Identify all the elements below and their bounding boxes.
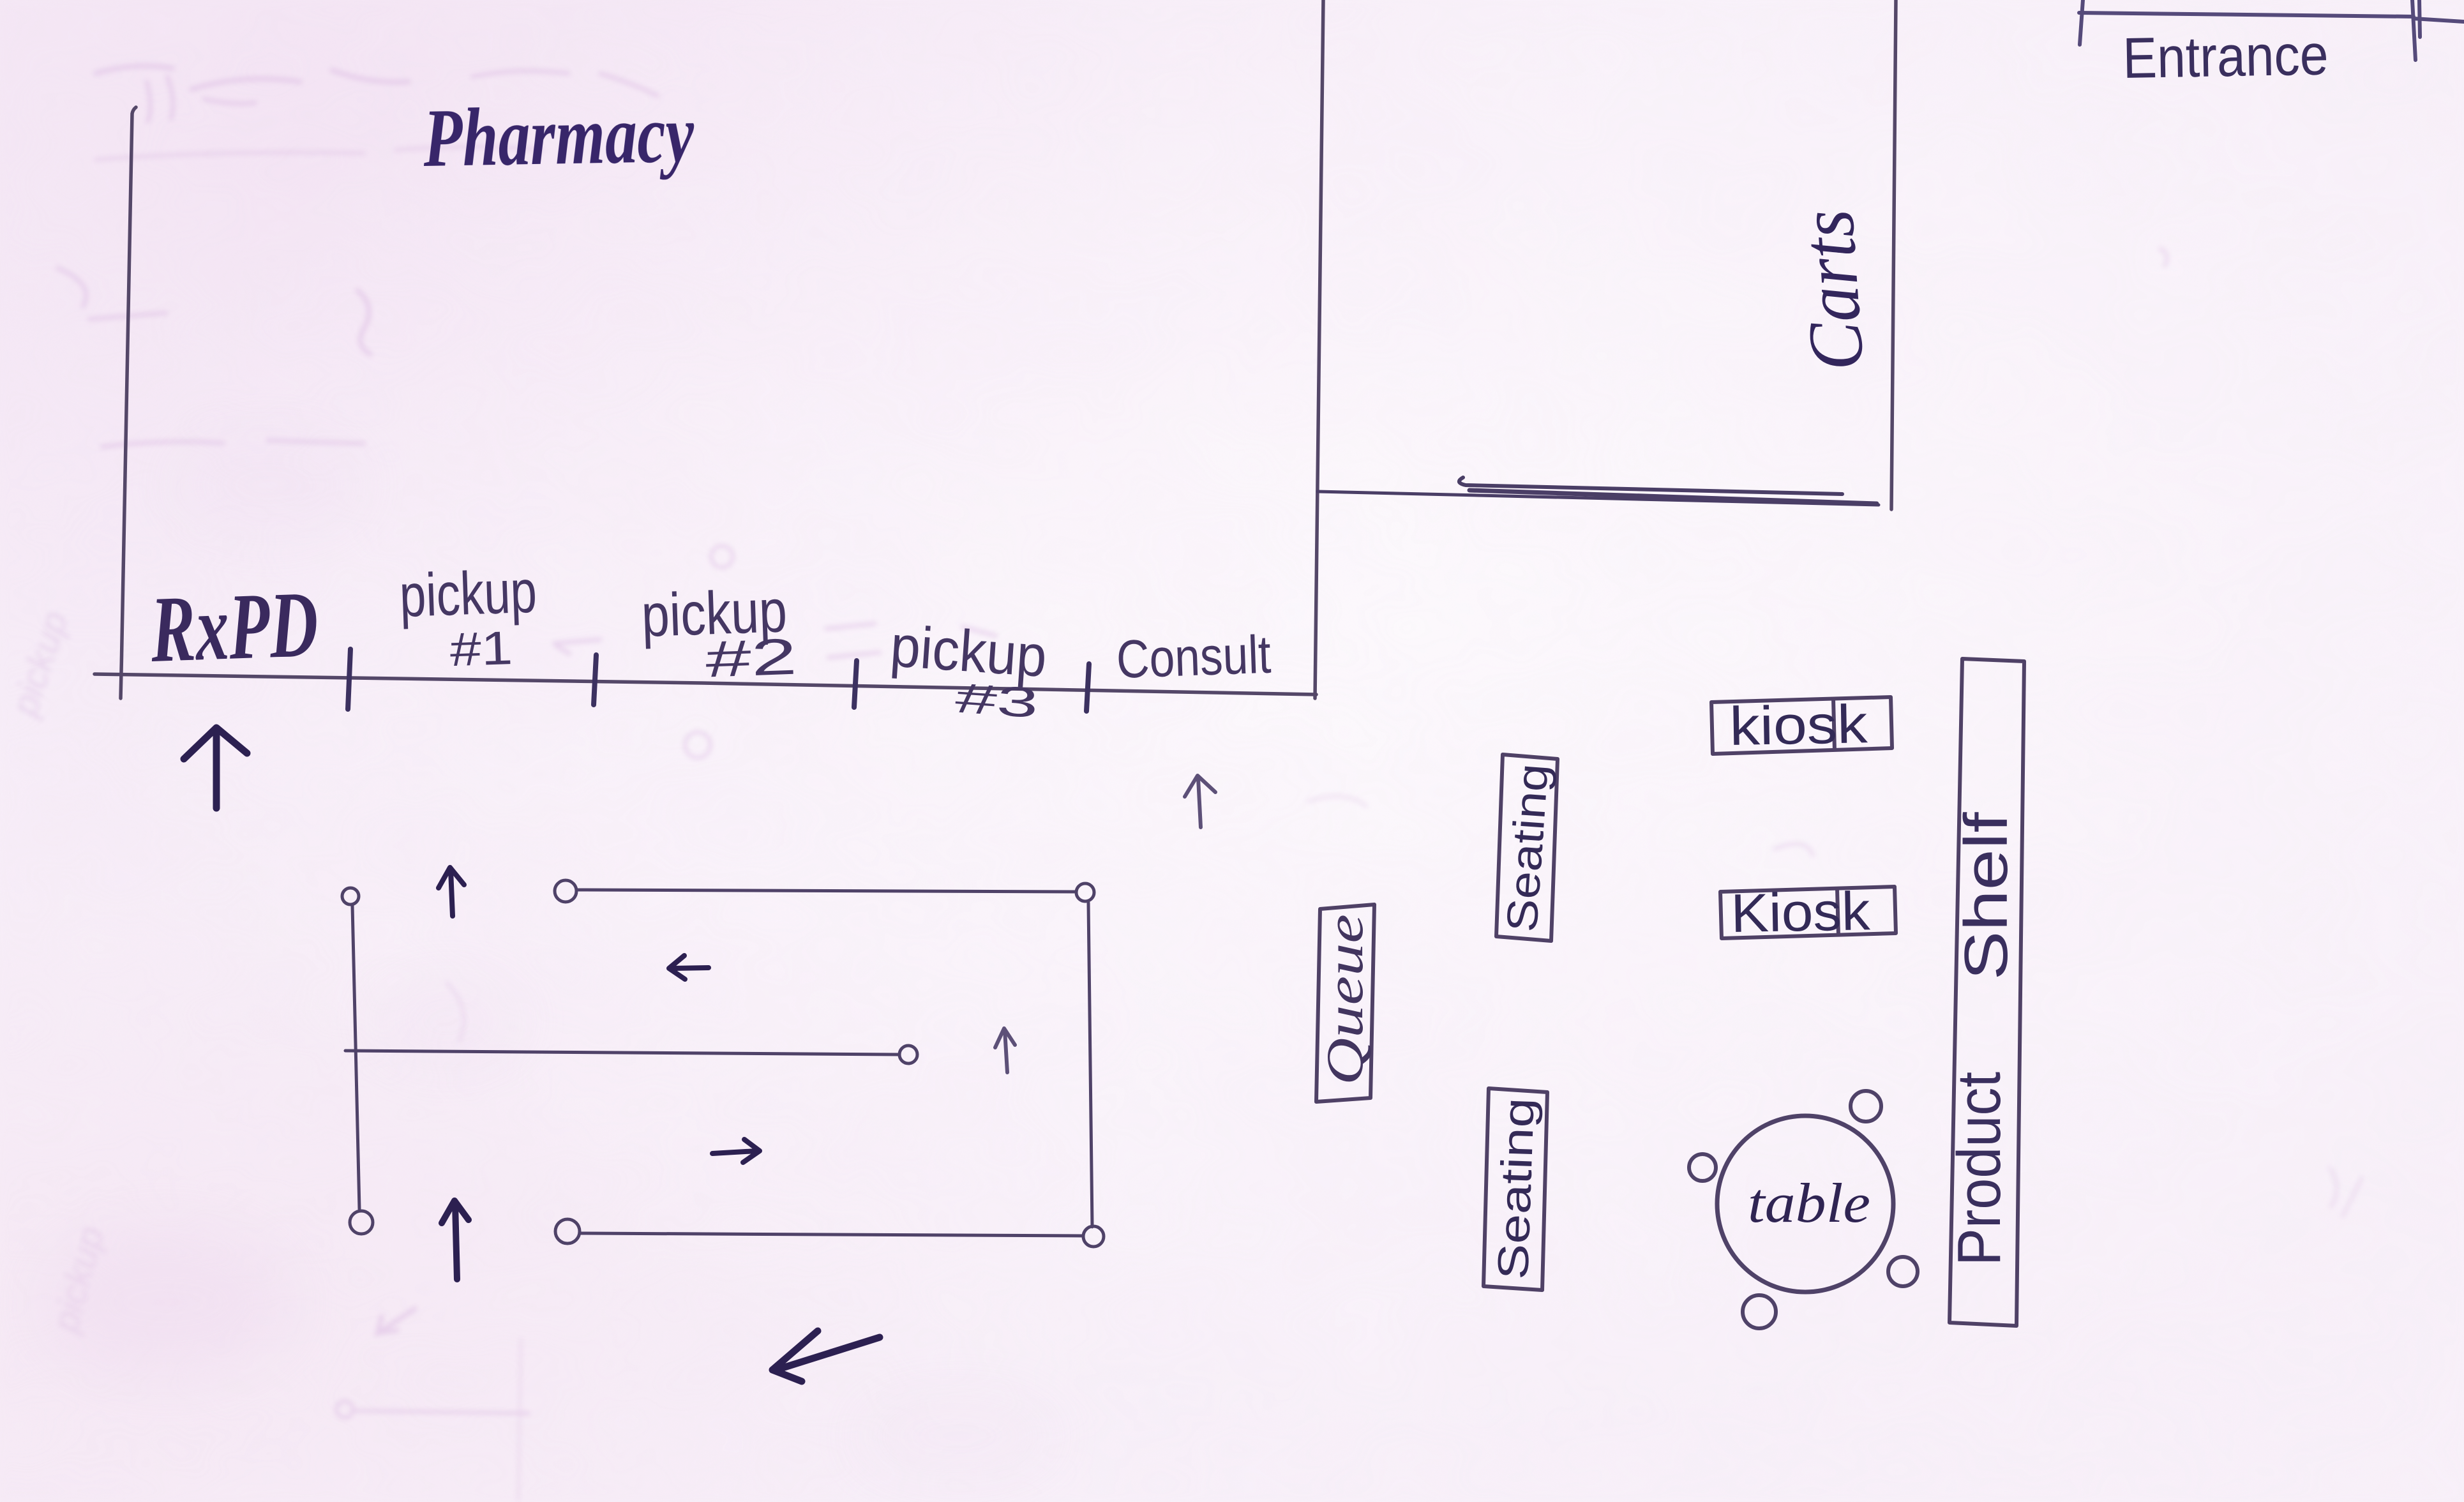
svg-text:Kiosk: Kiosk — [1731, 881, 1871, 944]
svg-text:Product: Product — [1945, 1072, 2013, 1266]
svg-text:Seating: Seating — [1489, 1097, 1544, 1280]
svg-text:#2: #2 — [705, 628, 798, 688]
svg-text:kiosk: kiosk — [1729, 694, 1868, 757]
svg-text:Consult: Consult — [1115, 624, 1272, 689]
svg-text:#1: #1 — [449, 621, 513, 676]
svg-text:RxPD: RxPD — [149, 572, 320, 682]
svg-text:Shelf: Shelf — [1952, 812, 2020, 980]
svg-text:Entrance: Entrance — [2122, 23, 2329, 91]
svg-text:Pharmacy: Pharmacy — [422, 88, 695, 184]
svg-text:pickup: pickup — [398, 558, 538, 630]
svg-text:Queue: Queue — [1316, 914, 1374, 1085]
svg-text:#3: #3 — [954, 673, 1040, 726]
svg-text:Carts: Carts — [1784, 207, 1879, 373]
svg-text:table: table — [1748, 1173, 1870, 1235]
